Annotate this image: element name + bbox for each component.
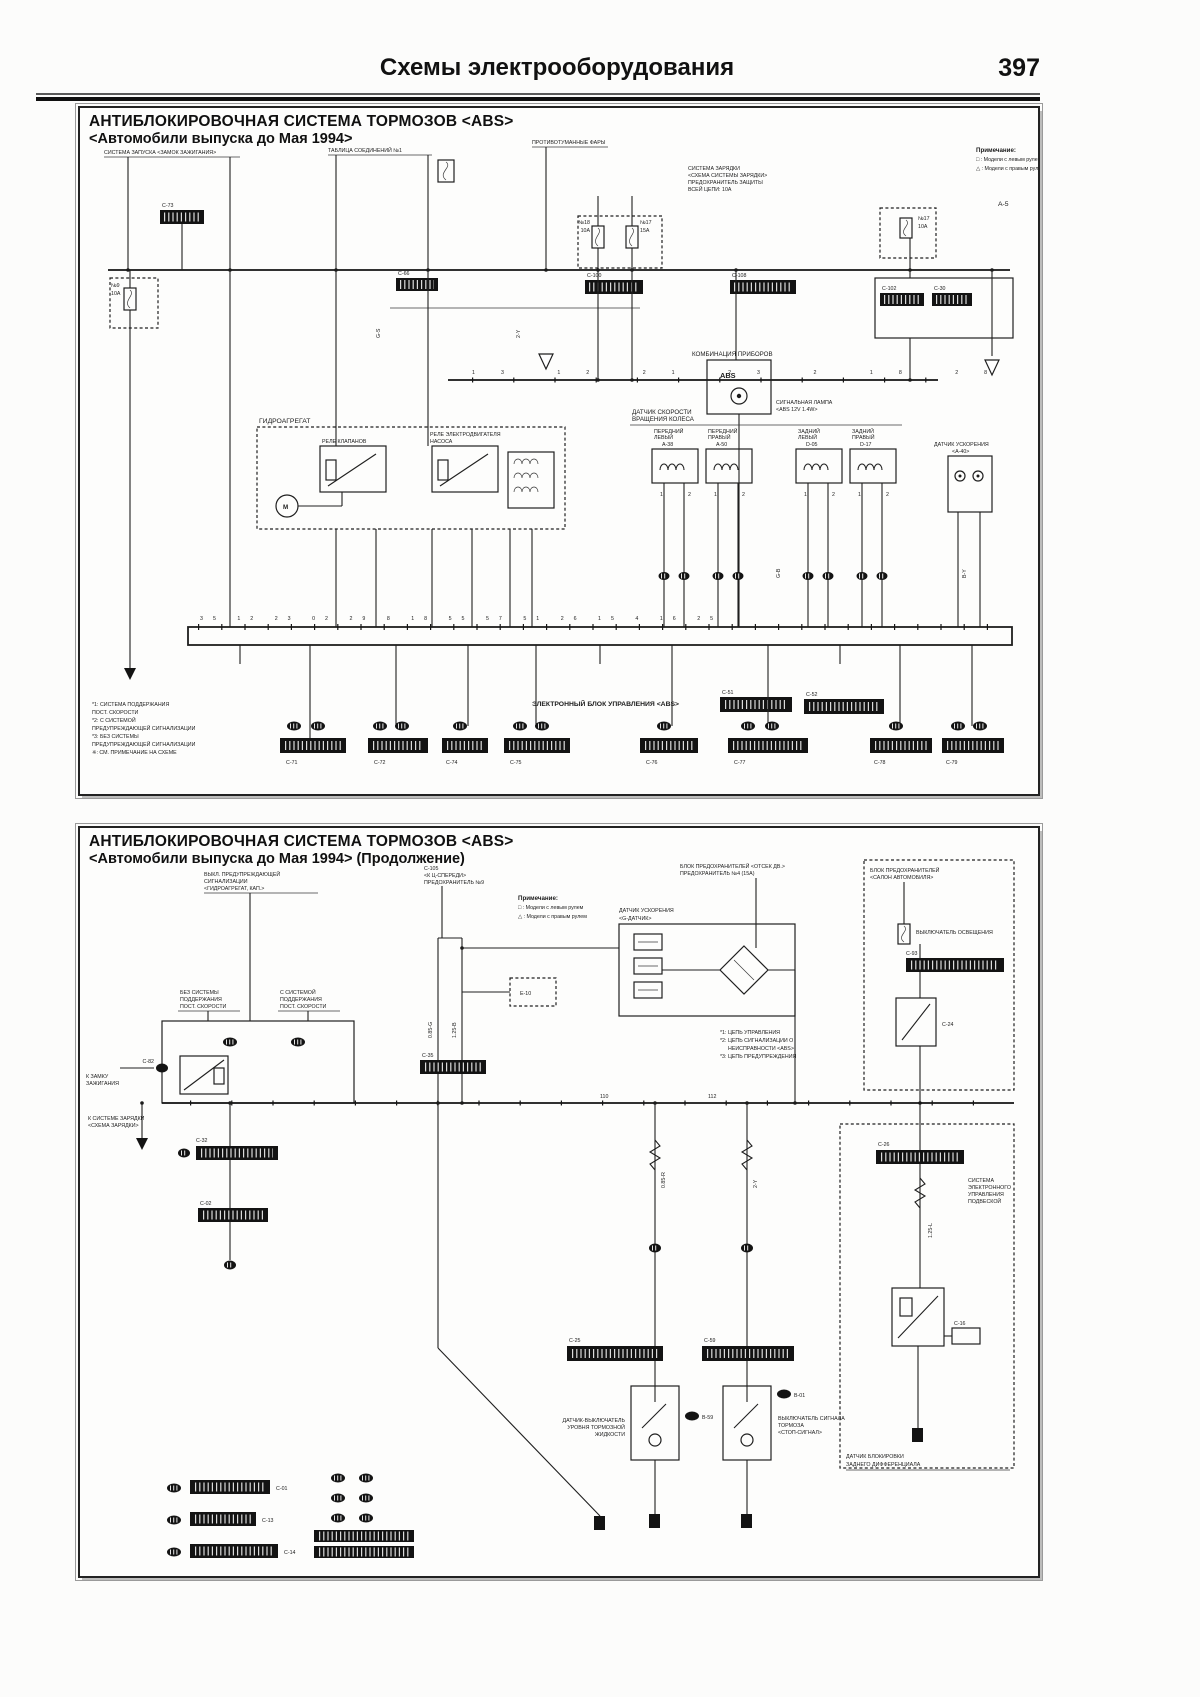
connector-c35-label: C-35 xyxy=(422,1053,434,1059)
p2-center-wiring: Е-10 C-35 0.85-G 1.25-B xyxy=(420,938,619,1530)
header-rule-thin xyxy=(36,93,1040,95)
ground-block xyxy=(594,1516,605,1530)
connector-label: C-76 xyxy=(646,760,658,766)
connector-c108 xyxy=(730,280,796,294)
footnote: *1: СИСТЕМА ПОДДЕРЖАНИЯ xyxy=(92,702,169,708)
system-caption: УПРАВЛЕНИЯ xyxy=(968,1192,1004,1198)
connector-label: C-01 xyxy=(276,1486,288,1492)
panel2-title: АНТИБЛОКИРОВОЧНАЯ СИСТЕМА ТОРМОЗОВ <ABS> xyxy=(89,833,514,851)
pin-number: 1 xyxy=(804,492,807,498)
sensors-caption-1: ДАТЧИК СКОРОСТИ xyxy=(632,409,692,416)
motor-label: M xyxy=(283,504,288,511)
connector-c93-label: C-93 xyxy=(906,951,918,957)
ground-block xyxy=(912,1428,923,1442)
wheel-sensor-rear-left: ЗАДНИЙ ЛЕВЫЙ D-05 1 2 xyxy=(796,427,842,627)
p1-wheel-sensors: ДАТЧИК СКОРОСТИ ВРАЩЕНИЯ КОЛЕСА ПЕРЕДНИЙ… xyxy=(630,409,902,627)
pin-number: 1 xyxy=(858,492,861,498)
wire-label: B-Y xyxy=(962,569,968,578)
wire-label: 0.85-G xyxy=(428,1022,434,1038)
footnote: ПРЕДУПРЕЖДАЮЩЕЙ СИГНАЛИЗАЦИИ xyxy=(92,740,196,748)
relay-pump-label-2: НАСОСА xyxy=(430,439,453,445)
connector-c82 xyxy=(156,1064,168,1073)
sensor-label: ПРАВЫЙ xyxy=(852,433,875,441)
connector-label: C-72 xyxy=(374,760,386,766)
branch-label: ПОДДЕРЖАНИЯ xyxy=(180,997,222,1003)
cluster-caption: КОМБИНАЦИЯ ПРИБОРОВ xyxy=(692,351,773,358)
connector-c24-label: C-24 xyxy=(942,1022,954,1028)
connector-label: C-71 xyxy=(286,760,298,766)
p2-g-sensor: ДАТЧИК УСКОРЕНИЯ <G-ДАТЧИК> *1: ЦЕПЬ УПР… xyxy=(619,908,797,1103)
caption-warning-switch-1: ВЫКЛ. ПРЕДУПРЕЖДАЮЩЕЙ xyxy=(204,870,280,878)
panel2-subtitle: <Автомобили выпуска до Мая 1994> (Продол… xyxy=(89,851,514,867)
wire-label: G-B xyxy=(776,568,782,578)
connector-c108-label: C-108 xyxy=(732,273,746,279)
legend-lhd: □ : Модели с левым рулем xyxy=(518,905,584,911)
bus-number-1: 110 xyxy=(600,1094,608,1100)
caption-warning-switch-3: <ГИДРОАГРЕГАТ, КАП.> xyxy=(204,886,264,892)
wheel-sensor-front-right: ПЕРЕДНИЙ ПРАВЫЙ A-50 1 2 xyxy=(706,427,752,627)
legend-lhd: □ : Модели с левым рулем xyxy=(976,157,1038,163)
wire-label: 1.25-B xyxy=(452,1022,458,1038)
caption-warning-switch-2: СИГНАЛИЗАЦИИ xyxy=(204,879,248,885)
connector-c66-label: C-66 xyxy=(398,271,410,277)
pin-number: 2 xyxy=(742,492,745,498)
corner-ref: А-5 xyxy=(998,201,1009,208)
connector-c102-label: C-102 xyxy=(882,286,896,292)
p1-g-sensor: ДАТЧИК УСКОРЕНИЯ <A-40> xyxy=(934,442,992,627)
connector-label: C-13 xyxy=(262,1518,274,1524)
wire-label: 0.85-R xyxy=(661,1172,667,1188)
fusebox-caption-2: <САЛОН АВТОМОБИЛЯ> xyxy=(870,875,933,881)
footnote: *2: С СИСТЕМОЙ xyxy=(92,716,136,724)
legend-heading: Примечание: xyxy=(976,147,1016,154)
p1-abs-ecu: 35 12 23 02 29 8 18 55 57 51 26 15 4 16 … xyxy=(188,616,1012,714)
sensor-id: D-05 xyxy=(806,442,818,448)
note-line: НЕИСПРАВНОСТИ <ABS> xyxy=(728,1046,794,1052)
junction-e10-label: Е-10 xyxy=(520,991,531,997)
connector-cluster xyxy=(314,1474,414,1559)
connector-c59-label: C-59 xyxy=(704,1338,716,1344)
lamp-note-1: СИГНАЛЬНАЯ ЛАМПА xyxy=(776,400,833,406)
connector-c26-label: C-26 xyxy=(878,1142,890,1148)
p2-left-relay-box: БЕЗ СИСТЕМЫ ПОДДЕРЖАНИЯ ПОСТ. СКОРОСТИ С… xyxy=(86,988,354,1103)
footnote: ПРЕДУПРЕЖДАЮЩЕЙ СИГНАЛИЗАЦИИ xyxy=(92,724,196,732)
panel1-titles: АНТИБЛОКИРОВОЧНАЯ СИСТЕМА ТОРМОЗОВ <ABS>… xyxy=(89,113,514,147)
connector-c93 xyxy=(906,958,1004,972)
system-caption: СИСТЕМА xyxy=(968,1178,994,1184)
switch-caption: УРОВНЯ ТОРМОЗНОЙ xyxy=(567,1423,625,1431)
p1-top-captions: СИСТЕМА ЗАПУСКА <ЗАМОК ЗАЖИГАНИЯ> ТАБЛИЦ… xyxy=(104,140,767,270)
pin-number: 2 xyxy=(688,492,691,498)
footnote: ПОСТ. СКОРОСТИ xyxy=(92,710,139,716)
ground-symbol xyxy=(136,1138,148,1150)
sensors-caption-2: ВРАЩЕНИЯ КОЛЕСА xyxy=(632,416,695,423)
connector-c51 xyxy=(720,697,792,712)
p1-footnotes: *1: СИСТЕМА ПОДДЕРЖАНИЯ ПОСТ. СКОРОСТИ *… xyxy=(92,702,196,756)
diagram-panel-abs-1: АНТИБЛОКИРОВОЧНАЯ СИСТЕМА ТОРМОЗОВ <ABS>… xyxy=(78,106,1040,796)
connector-group: C-13 xyxy=(167,1512,274,1526)
panel1-subtitle: <Автомобили выпуска до Мая 1994> xyxy=(89,131,514,147)
charge-note-1: СИСТЕМА ЗАРЯДКИ xyxy=(688,166,740,172)
fusebox-caption-1: БЛОК ПРЕДОХРАНИТЕЛЕЙ xyxy=(870,866,940,874)
caption-fog: ПРОТИВОТУМАННЫЕ ФАРЫ xyxy=(532,140,606,146)
switch-caption: ЖИДКОСТИ xyxy=(595,1432,625,1438)
charge-caption-2: <СХЕМА ЗАРЯДКИ> xyxy=(88,1123,139,1129)
pin-number: 1 xyxy=(660,492,663,498)
caption-fusebox-1: БЛОК ПРЕДОХРАНИТЕЛЕЙ <ОТСЕК ДВ.> xyxy=(680,862,785,870)
manual-page: Схемы электрооборудования 397 АНТИБЛОКИР… xyxy=(0,0,1200,1697)
sensor-id: A-50 xyxy=(716,442,727,448)
connector-label: C-14 xyxy=(284,1550,296,1556)
sensor-label: ЛЕВЫЙ xyxy=(654,433,673,441)
fuse1-amp: 10А xyxy=(581,228,591,234)
p1-hydraulic-unit: ГИДРОАГРЕГАТ РЕЛЕ КЛАПАНОВ РЕЛЕ ЭЛЕКТРОД… xyxy=(257,270,565,627)
p2-right-chain: C-26 1.25-L СИСТЕМА ЭЛЕКТРОННОГО УПРАВЛЕ… xyxy=(840,1124,1014,1470)
branch-label: ПОСТ. СКОРОСТИ xyxy=(280,1004,327,1010)
p2-main-bus: 110 112 xyxy=(140,1094,1014,1105)
p1-fuse-pair: №18 10А №17 15А xyxy=(578,196,662,270)
p2-fluid-level-branch: 0.85-R C-25 B-59 ДАТЧИК-ВЫКЛЮЧАТЕЛЬ УРОВ… xyxy=(563,1103,714,1528)
wire-label: 1.25-L xyxy=(928,1223,934,1238)
junction-e10 xyxy=(510,978,556,1006)
connector-group: C-75 xyxy=(504,722,570,767)
connector-group: C-74 xyxy=(442,722,488,767)
ignition-caption-2: ЗАЖИГАНИЯ xyxy=(86,1081,119,1087)
sensor-label: ПЕРЕДНИЙ xyxy=(654,427,684,435)
fuse-left-name: №9 xyxy=(111,283,120,289)
wheel-sensor-front-left: ПЕРЕДНИЙ ЛЕВЫЙ A-38 1 2 xyxy=(652,427,698,627)
off-page-arrow xyxy=(539,354,553,369)
fuse-icon xyxy=(438,160,454,182)
caption-c105-3: ПРЕДОХРАНИТЕЛЬ №9 xyxy=(424,880,484,886)
connector-c32 xyxy=(196,1146,278,1160)
charge-note-2: <СХЕМА СИСТЕМЫ ЗАРЯДКИ> xyxy=(688,173,767,179)
wire-label: G-S xyxy=(376,328,382,338)
ecu-pin-numbers: 35 12 23 02 29 8 18 55 57 51 26 15 4 16 … xyxy=(200,616,723,622)
caption-ignition: СИСТЕМА ЗАПУСКА <ЗАМОК ЗАЖИГАНИЯ> xyxy=(104,150,216,156)
caption-c105-2: <К Ц-СПЕРЕДИ> xyxy=(424,873,466,879)
fuse-left-amp: 10А xyxy=(111,291,121,297)
wire-label: 2-Y xyxy=(516,329,522,338)
connector-c16-label: C-16 xyxy=(954,1321,966,1327)
relay-pump-label-1: РЕЛЕ ЭЛЕКТРОДВИГАТЕЛЯ xyxy=(430,432,501,438)
relay-valves-label: РЕЛЕ КЛАПАНОВ xyxy=(322,439,367,445)
p1-left-branch: C-73 №9 10А xyxy=(110,203,230,680)
connector-c02-label: C-02 xyxy=(200,1201,212,1207)
charge-note-4: ВСЕЙ ЦЕПИ: 10А xyxy=(688,185,732,193)
page-number: 397 xyxy=(998,54,1040,83)
connector-c32-label: C-32 xyxy=(196,1138,208,1144)
p2-bottom-left-connectors: C-01 C-13 C-14 xyxy=(167,1474,414,1559)
branch-label: ПОСТ. СКОРОСТИ xyxy=(180,1004,227,1010)
lamp-note-2: <ABS 12V 1.4W> xyxy=(776,407,818,413)
connector-c30-label: C-30 xyxy=(934,286,946,292)
panel2-titles: АНТИБЛОКИРОВОЧНАЯ СИСТЕМА ТОРМОЗОВ <ABS>… xyxy=(89,833,514,867)
light-switch-caption: ВЫКЛЮЧАТЕЛЬ ОСВЕЩЕНИЯ xyxy=(916,930,993,936)
connector-group: C-78 xyxy=(870,722,932,767)
switch-caption: <СТОП-СИГНАЛ> xyxy=(778,1430,822,1436)
fuse2-name: №17 xyxy=(640,220,652,226)
connector-b59 xyxy=(685,1412,699,1421)
p1-legend: Примечание: □ : Модели с левым рулем △ :… xyxy=(976,147,1038,208)
connector-label: C-79 xyxy=(946,760,958,766)
switch-caption: ДАТЧИК-ВЫКЛЮЧАТЕЛЬ xyxy=(563,1418,626,1424)
p1-ecu-stubs xyxy=(240,645,972,738)
p2-stop-switch-branch: 2-Y C-59 B-01 ВЫКЛЮЧАТЕЛЬ СИГНАЛА ТОРМОЗ… xyxy=(702,1103,845,1528)
p1-wire-labels: 2-Y G-B B-Y G-S xyxy=(376,328,968,578)
connector-c51-label: C-51 xyxy=(722,690,734,696)
sensor-label: ПЕРЕДНИЙ xyxy=(708,427,738,435)
wiring-diagram-2: ВЫКЛ. ПРЕДУПРЕЖДАЮЩЕЙ СИГНАЛИЗАЦИИ <ГИДР… xyxy=(80,828,1038,1576)
fuse2-amp: 15А xyxy=(640,228,650,234)
note-line: *2: ЦЕПЬ СИГНАЛИЗАЦИИ О xyxy=(720,1038,793,1044)
connector-group: C-77 xyxy=(728,722,808,767)
pin-number: 2 xyxy=(832,492,835,498)
connector-label: C-78 xyxy=(874,760,886,766)
abs-warning-lamp-box xyxy=(707,360,771,414)
pin-number: 2 xyxy=(886,492,889,498)
connector-label: C-75 xyxy=(510,760,522,766)
footnote: ※: СМ. ПРИМЕЧАНИЕ НА СХЕМЕ xyxy=(92,750,177,756)
system-caption: ПОДВЕСКОЙ xyxy=(968,1197,1001,1205)
p2-legend: Примечание: □ : Модели с левым рулем △ :… xyxy=(518,895,587,920)
sensor-label: ЗАДНИЙ xyxy=(852,427,874,435)
legend-rhd: △ : Модели с правым рулем xyxy=(976,166,1038,172)
connector-c73-label: C-73 xyxy=(162,203,174,209)
bottom-note-2: ЗАДНЕГО ДИФФЕРЕНЦИАЛА xyxy=(846,1462,921,1468)
connector-c100-label: C-100 xyxy=(587,273,601,279)
branch-label: БЕЗ СИСТЕМЫ xyxy=(180,990,219,996)
connector-group: C-71 xyxy=(280,722,346,767)
branch-label: С СИСТЕМОЙ xyxy=(280,988,316,996)
charge-note-3: ПРЕДОХРАНИТЕЛЬ ЗАЩИТЫ xyxy=(688,180,763,186)
bus-number-2: 112 xyxy=(708,1094,716,1100)
pin-number: 1 xyxy=(714,492,717,498)
ground-block xyxy=(649,1514,660,1528)
sensor-id: A-38 xyxy=(662,442,673,448)
g-sensor-id: <A-40> xyxy=(952,449,969,455)
fuse3-amp: 10А xyxy=(918,224,928,230)
connector-label: C-77 xyxy=(734,760,746,766)
ecu-label: ЭЛЕКТРОННЫЙ БЛОК УПРАВЛЕНИЯ <ABS> xyxy=(532,699,679,708)
fuse3-name: №17 xyxy=(918,216,930,222)
switch-caption: ВЫКЛЮЧАТЕЛЬ СИГНАЛА xyxy=(778,1416,845,1422)
footnote: *3: БЕЗ СИСТЕМЫ xyxy=(92,734,139,740)
bottom-note-1: ДАТЧИК БЛОКИРОВКИ xyxy=(846,1454,904,1460)
branch-label: ПОДДЕРЖАНИЯ xyxy=(280,997,322,1003)
wiring-diagram-1: СИСТЕМА ЗАПУСКА <ЗАМОК ЗАЖИГАНИЯ> ТАБЛИЦ… xyxy=(80,108,1038,794)
connector-c82-label: C-82 xyxy=(143,1059,155,1065)
connector-group: C-72 xyxy=(368,722,428,767)
connector-group: C-14 xyxy=(167,1544,296,1558)
wire-label: 2-Y xyxy=(753,1179,759,1188)
diagram-panel-abs-2: АНТИБЛОКИРОВОЧНАЯ СИСТЕМА ТОРМОЗОВ <ABS>… xyxy=(78,826,1040,1578)
sensor-label: ЗАДНИЙ xyxy=(798,427,820,435)
connector-label: C-74 xyxy=(446,760,458,766)
g-sensor-caption: ДАТЧИК УСКОРЕНИЯ xyxy=(934,442,989,448)
caption-table: ТАБЛИЦА СОЕДИНЕНИЙ №1 xyxy=(328,146,402,154)
sensor-label: ПРАВЫЙ xyxy=(708,433,731,441)
bus-pin-numbers: 13 12 21 23 2 18 28 3 xyxy=(472,370,1038,376)
caption-fusebox-2: ПРЕДОХРАНИТЕЛЬ №4 (15А) xyxy=(680,871,755,877)
header-rule-thick xyxy=(36,97,1040,101)
sensor-label: ЛЕВЫЙ xyxy=(798,433,817,441)
fuse1-name: №18 xyxy=(578,220,590,226)
p1-right-fuse-frame: №17 10А C-102 C-30 xyxy=(875,208,1013,380)
note-line: *3: ЦЕПЬ ПРЕДУПРЕЖДЕНИЯ xyxy=(720,1054,797,1060)
connector-b59-label: B-59 xyxy=(702,1415,713,1421)
p2-left-lower: К СИСТЕМЕ ЗАРЯДКИ <СХЕМА ЗАРЯДКИ> C-32 C… xyxy=(88,1103,278,1270)
connector-c52-label: C-52 xyxy=(806,692,818,698)
p2-interior-fusebox: БЛОК ПРЕДОХРАНИТЕЛЕЙ <САЛОН АВТОМОБИЛЯ> … xyxy=(864,860,1014,1150)
ground-block xyxy=(741,1514,752,1528)
charge-caption-1: К СИСТЕМЕ ЗАРЯДКИ xyxy=(88,1116,145,1122)
g-sensor-caption-2: <G-ДАТЧИК> xyxy=(619,916,651,922)
wheel-sensor-rear-right: ЗАДНИЙ ПРАВЫЙ D-17 1 2 xyxy=(850,427,896,627)
fuse-icon xyxy=(898,924,910,944)
switch-caption: ТОРМОЗА xyxy=(778,1423,804,1429)
sensor-id: D-17 xyxy=(860,442,872,448)
connector-b01 xyxy=(777,1390,791,1399)
connector-group: C-76 xyxy=(640,722,698,767)
p1-bottom-connectors: C-71 C-72 C-74 C-75 xyxy=(280,722,1004,767)
connector-c25-label: C-25 xyxy=(569,1338,581,1344)
hydro-caption: ГИДРОАГРЕГАТ xyxy=(259,418,310,425)
connector-c16 xyxy=(952,1328,980,1344)
legend-heading: Примечание: xyxy=(518,895,558,902)
system-caption: ЭЛЕКТРОННОГО xyxy=(968,1185,1011,1191)
note-line: *1: ЦЕПЬ УПРАВЛЕНИЯ xyxy=(720,1030,780,1036)
panel1-title: АНТИБЛОКИРОВОЧНАЯ СИСТЕМА ТОРМОЗОВ <ABS> xyxy=(89,113,514,131)
page-header: Схемы электрооборудования 397 xyxy=(78,54,1036,90)
g-sensor-caption-1: ДАТЧИК УСКОРЕНИЯ xyxy=(619,908,674,914)
ground-symbol xyxy=(124,668,136,680)
abs-lamp-label: ABS xyxy=(720,371,736,380)
connector-group: C-01 xyxy=(167,1480,288,1494)
legend-rhd: △ : Модели с правым рулем xyxy=(518,914,587,920)
page-title: Схемы электрооборудования xyxy=(78,54,1036,82)
connector-group: C-79 xyxy=(942,722,1004,767)
ignition-caption-1: К ЗАМКУ xyxy=(86,1074,109,1080)
connector-b01-label: B-01 xyxy=(794,1393,805,1399)
